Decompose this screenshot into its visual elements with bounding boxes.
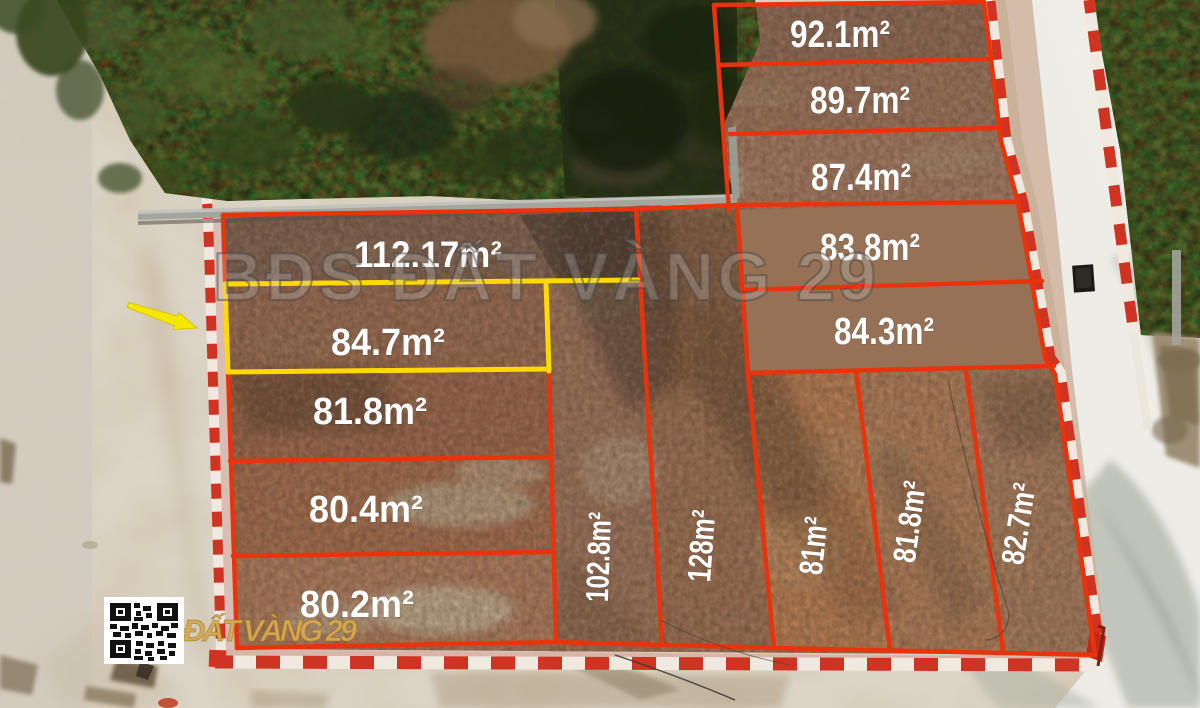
svg-text:80.4m²: 80.4m² <box>309 489 423 531</box>
svg-text:102.8m²: 102.8m² <box>579 511 618 602</box>
svg-text:84.7m²: 84.7m² <box>331 322 445 364</box>
svg-text:81.8m²: 81.8m² <box>313 391 427 433</box>
svg-text:128m²: 128m² <box>680 509 722 583</box>
svg-text:BĐS ĐẤT VÀNG 29: BĐS ĐẤT VÀNG 29 <box>213 238 876 315</box>
svg-text:84.3m²: 84.3m² <box>834 311 934 353</box>
svg-text:87.4m²: 87.4m² <box>811 157 911 199</box>
svg-text:81m²: 81m² <box>792 515 835 577</box>
svg-text:92.1m²: 92.1m² <box>790 14 890 56</box>
svg-text:ĐẤT VÀNG 29: ĐẤT VÀNG 29 <box>183 612 358 648</box>
svg-text:89.7m²: 89.7m² <box>810 80 910 122</box>
